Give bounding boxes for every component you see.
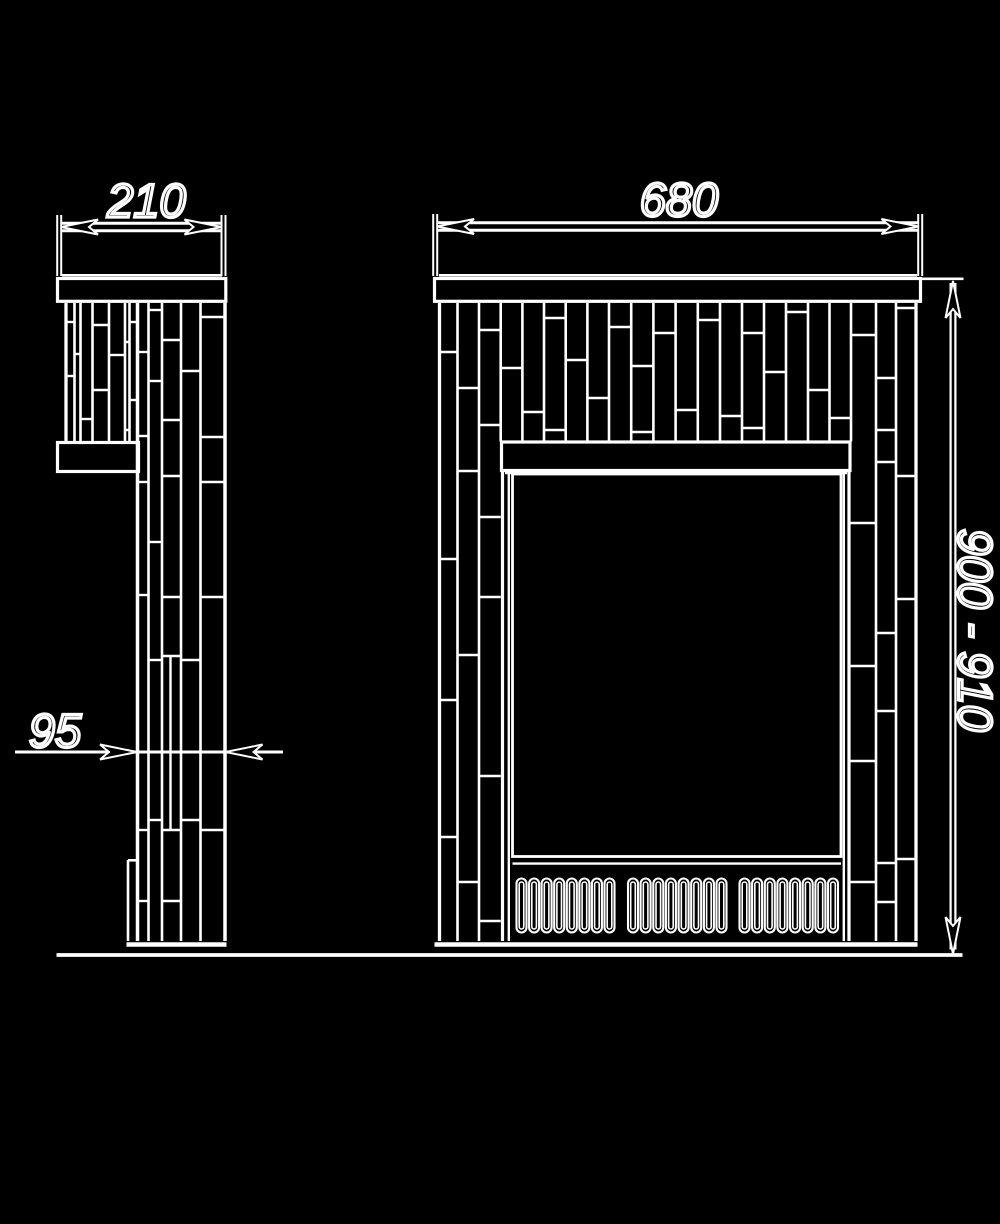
svg-text:95: 95 [29, 704, 82, 757]
svg-text:900 - 910: 900 - 910 [948, 529, 1000, 732]
svg-text:210: 210 [106, 174, 185, 227]
svg-text:680: 680 [640, 173, 718, 226]
